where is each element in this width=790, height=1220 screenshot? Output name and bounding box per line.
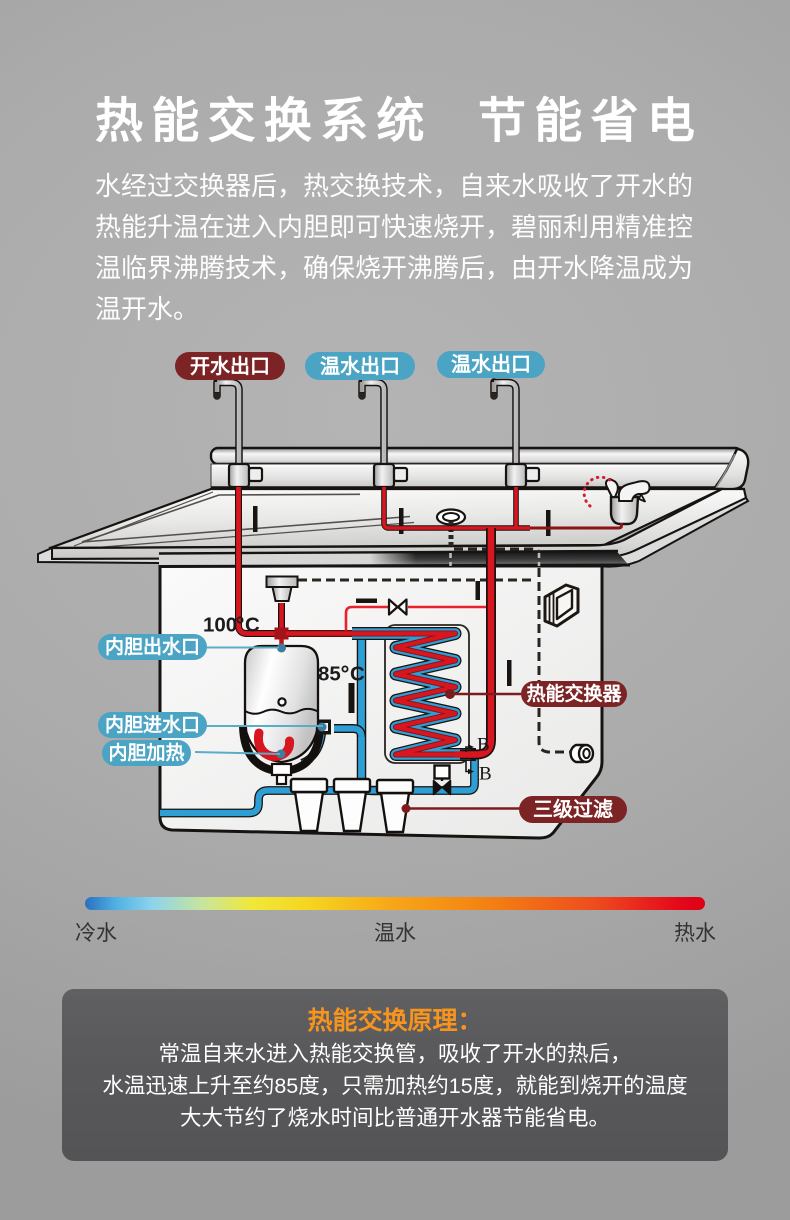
svg-text:C: C — [350, 663, 365, 686]
svg-text:内胆加热: 内胆加热 — [108, 741, 184, 764]
svg-text:100: 100 — [203, 614, 237, 637]
svg-text:温水出口: 温水出口 — [451, 352, 531, 376]
svg-text:内胆出水口: 内胆出水口 — [105, 635, 200, 658]
svg-text:C: C — [245, 614, 260, 637]
svg-text:开水出口: 开水出口 — [190, 355, 270, 378]
svg-text:温水出口: 温水出口 — [320, 354, 400, 378]
svg-text:85: 85 — [318, 663, 341, 686]
svg-text:B: B — [477, 735, 490, 756]
svg-text:内胆进水口: 内胆进水口 — [105, 713, 200, 736]
svg-text:B: B — [479, 764, 492, 785]
svg-text:三级过滤: 三级过滤 — [533, 797, 613, 821]
svg-text:热能交换器: 热能交换器 — [526, 682, 622, 705]
